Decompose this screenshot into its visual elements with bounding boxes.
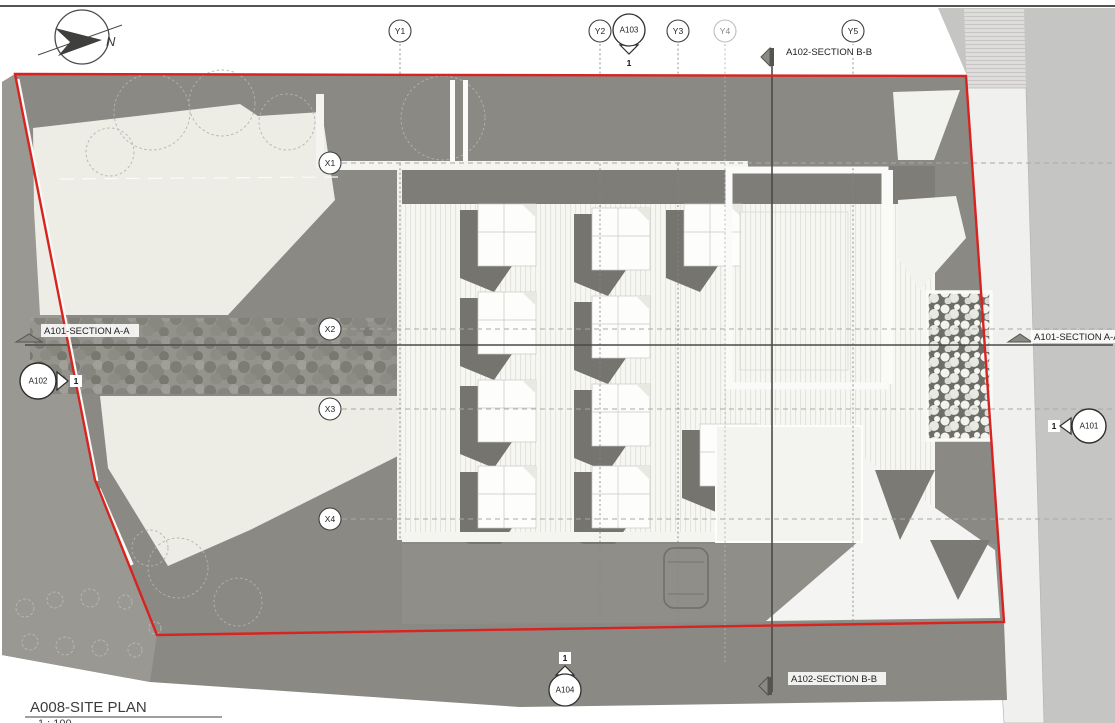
north-label: N	[106, 34, 116, 49]
grid-bubble-label: Y4	[720, 26, 731, 36]
grid-bubble-x2: X2	[319, 318, 341, 340]
grid-bubble-x4: X4	[319, 508, 341, 530]
section-label-aa-left[interactable]: A101-SECTION A-A	[41, 324, 139, 337]
roof-west-edge	[397, 166, 402, 540]
callout-detail-number: 1	[74, 376, 79, 386]
grid-bubble-y5: Y5	[842, 20, 864, 42]
north-arrow-head	[55, 28, 102, 56]
grid-bubble-label: X2	[325, 324, 336, 334]
callout-sheet-label: A102	[29, 377, 48, 386]
pool-deck	[740, 212, 848, 370]
wall-slit	[450, 80, 455, 166]
section-label-text: A102-SECTION B-B	[791, 674, 877, 685]
callout-detail-number: 1	[1052, 421, 1057, 431]
callout-sheet-label: A103	[620, 26, 639, 35]
grid-bubble-y1: Y1	[389, 20, 411, 42]
section-label-bb-top[interactable]: A102-SECTION B-B	[783, 45, 881, 58]
view-title: A008-SITE PLAN 1 : 100	[25, 699, 222, 723]
view-title-text: A008-SITE PLAN	[30, 699, 147, 716]
callout-a103[interactable]: A103 1	[613, 14, 645, 69]
callout-sheet-label: A101	[1080, 422, 1099, 431]
site-plan-drawing: A102-SECTION B-B A102-SECTION B-B A101-S…	[0, 0, 1115, 723]
callout-sheet-label: A104	[556, 686, 575, 695]
grid-bubble-label: Y3	[673, 26, 684, 36]
section-label-aa-right[interactable]: A101-SECTION A-A	[1031, 330, 1115, 343]
grid-bubble-label: Y1	[395, 26, 406, 36]
grid-bubble-label: X3	[325, 404, 336, 414]
grid-bubble-x1: X1	[319, 152, 341, 174]
section-label-text: A101-SECTION A-A	[1034, 332, 1115, 343]
crosswalk	[964, 9, 1026, 89]
section-label-text: A102-SECTION B-B	[786, 47, 872, 58]
grid-bubble-y2: Y2	[589, 20, 611, 42]
north-wall-band	[322, 161, 748, 170]
grid-bubble-x3: X3	[319, 398, 341, 420]
wall-slit	[463, 80, 468, 166]
terrace	[716, 426, 862, 542]
section-label-bb-bottom[interactable]: A102-SECTION B-B	[788, 672, 886, 685]
grid-bubble-label: X1	[325, 158, 336, 168]
north-arrow: N	[38, 10, 122, 64]
east-wall	[884, 170, 893, 384]
grid-bubble-y4: Y4	[714, 20, 736, 42]
grid-bubble-label: Y2	[595, 26, 606, 36]
section-label-text: A101-SECTION A-A	[44, 326, 130, 337]
callout-detail-number: 1	[627, 58, 632, 68]
grid-bubble-label: X4	[325, 514, 336, 524]
grid-bubble-y3: Y3	[667, 20, 689, 42]
callout-detail-number: 1	[563, 653, 568, 663]
grid-bubble-label: Y5	[848, 26, 859, 36]
section-marker-bb-top[interactable]	[761, 48, 774, 66]
site-plan-sheet: A102-SECTION B-B A102-SECTION B-B A101-S…	[0, 0, 1115, 723]
view-scale-text: 1 : 100	[38, 718, 72, 723]
